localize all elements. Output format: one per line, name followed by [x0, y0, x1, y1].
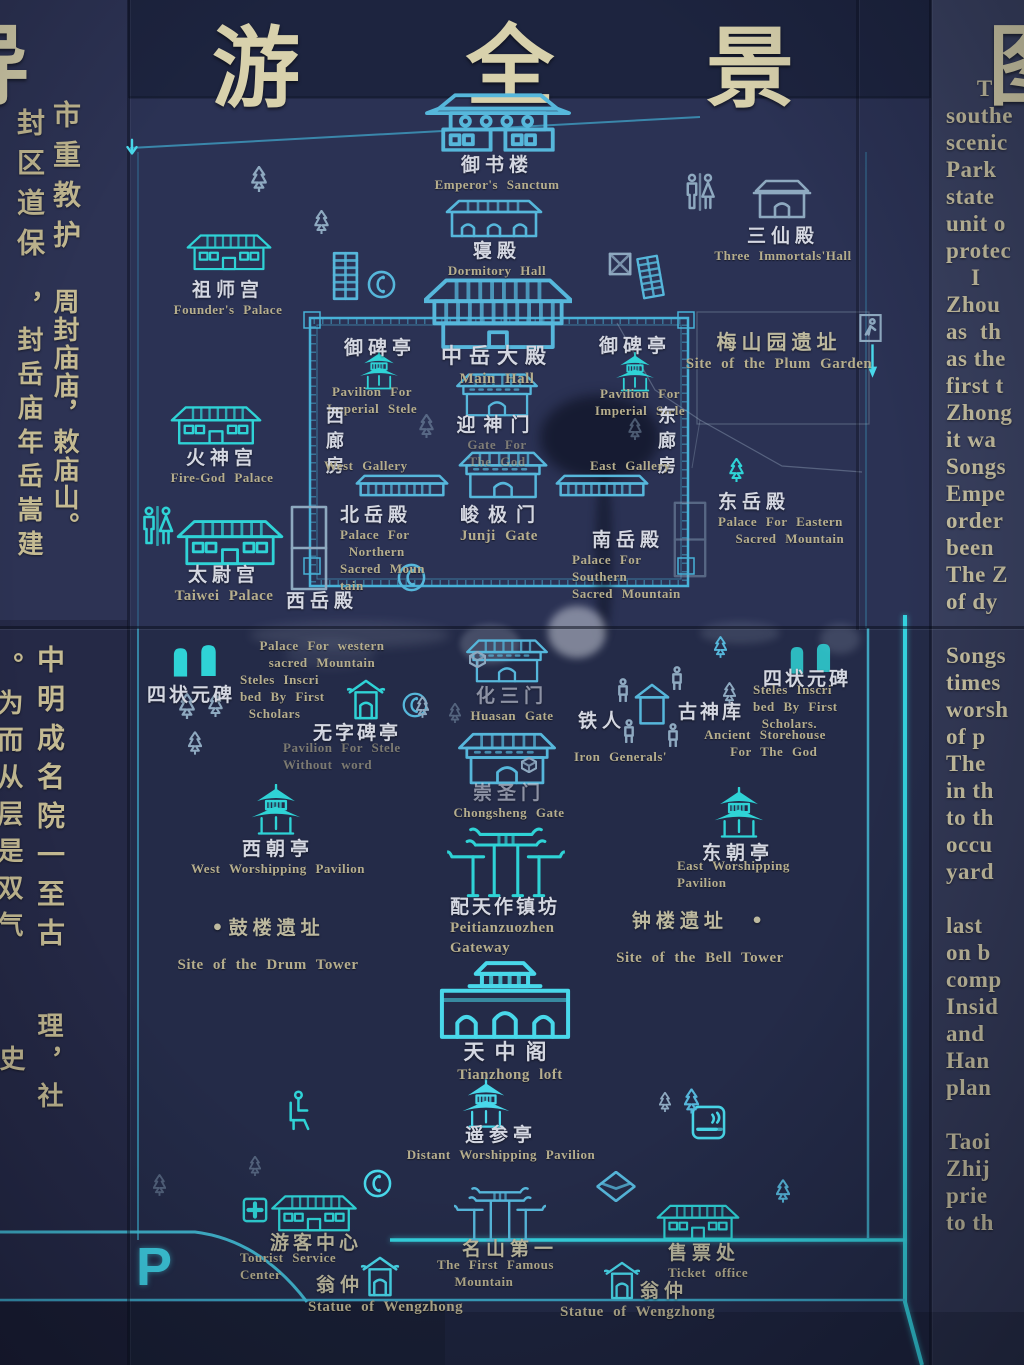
tianzhong-loft-gate-icon [421, 960, 589, 1040]
tree-icon [416, 696, 429, 718]
tree-icon [251, 166, 267, 192]
right-text-line [946, 886, 1024, 913]
signpost-box-icon [608, 249, 637, 278]
wengzhong-shrine-east-icon [604, 1259, 640, 1301]
right-text-line: times [946, 670, 1024, 697]
site-dormitory-hall: 寝殿 Dormitory Hall [448, 236, 546, 280]
right-text-line: on b [946, 940, 1024, 967]
main-hall-icon [408, 276, 588, 350]
right-text-line: Songs [946, 454, 1024, 481]
junji-gate-east-wing-icon [552, 472, 652, 497]
left-col-b1: 封区道保 [8, 108, 48, 268]
right-text-line: been [946, 535, 1024, 562]
right-text-line: The Z [946, 562, 1024, 589]
title-char-partial-left: 导 [0, 0, 30, 123]
ancient-storehouse-canopy-icon [634, 683, 670, 731]
right-text-line: it wa [946, 427, 1024, 454]
tree-icon [684, 1088, 699, 1114]
right-text-line: Zhij [946, 1156, 1024, 1183]
tree-icon [249, 1156, 261, 1176]
left-col-b2: ，封岳庙年岳嵩建 [10, 292, 47, 564]
right-text-line: occu [946, 832, 1024, 859]
right-text-line: Taoi [946, 1129, 1024, 1156]
site-first-famous-mountain-en: The First Famous Mountain [437, 1257, 554, 1291]
site-imperial-stele-pavilion-west-cn: 御碑亭 [344, 333, 416, 360]
right-text-line: last [946, 913, 1024, 940]
site-founders-palace: 祖师宫 Founder's Palace [174, 275, 283, 319]
right-text-line: Zhong [946, 400, 1024, 427]
right-text-line: The [946, 751, 1024, 778]
site-taiwei-palace: 太尉宫 Taiwei Palace [175, 560, 274, 607]
tree-icon [729, 458, 744, 482]
right-text-line: Songs [946, 643, 1024, 670]
right-text-line: yard [946, 859, 1024, 886]
site-imperial-stele-pavilion-east-cn: 御碑亭 [599, 331, 671, 358]
ticket-office-hall-icon [656, 1200, 740, 1242]
peitianzuozhen-gateway-icon [438, 825, 574, 898]
tree-icon [419, 414, 434, 438]
site-first-scholar-steles-west-cn: 四状元碑 [147, 680, 235, 707]
left-col-a1: 市重教护 [44, 100, 84, 260]
right-text-line: to th [946, 1210, 1024, 1237]
site-western-sacred-mountain-palace-cn: 西岳殿 [286, 586, 358, 613]
wengzhong-shrine-west-icon [360, 1255, 400, 1297]
tree-icon [714, 636, 727, 658]
right-text-line: first t [946, 373, 1024, 400]
three-immortals-hall-icon [742, 177, 822, 219]
site-tianzhong-loft: 天中阁 Tianzhong loft [457, 1036, 563, 1086]
right-text-line: I [946, 265, 1024, 292]
left-col-d1: 。为而从层是双气 [0, 652, 27, 948]
right-text-line: Empe [946, 481, 1024, 508]
tree-icon [153, 1174, 166, 1196]
first-aid-icon [242, 1197, 268, 1223]
right-text-line: worsh [946, 697, 1024, 724]
site-drum-tower-ruin: •鼓楼遗址 Site of the Drum Tower [178, 913, 359, 976]
entrance-arrow-icon [124, 138, 140, 158]
site-east-gallery-en: East Gallery [590, 458, 671, 475]
offering-box-icon [521, 757, 537, 773]
site-wengzhong-east: 翁仲 [640, 1276, 688, 1303]
site-yingshen-gate: 迎神门 Gate For The God [456, 410, 537, 471]
right-description-panel: T southe scenic Park state unit o protec… [946, 76, 1024, 1237]
site-wordless-stele-pavilion-en: Pavilion For Stele Without word [283, 740, 401, 774]
offering-box-icon [469, 651, 486, 668]
right-text-line: of dy [946, 589, 1024, 616]
parking-symbol: P [136, 1236, 172, 1298]
iron-general-figure-icon [617, 678, 629, 702]
right-text-line: Park [946, 157, 1024, 184]
site-three-immortals-hall: 三仙殿 Three Immortals'Hall [714, 221, 851, 265]
chongsheng-gate-icon [450, 730, 564, 785]
tourist-center-hall-icon [270, 1192, 358, 1232]
tree-icon [314, 210, 329, 234]
right-text-line: as the [946, 346, 1024, 373]
junji-gate-west-wing-icon [352, 472, 452, 497]
right-text-line: of p [946, 724, 1024, 751]
wordless-stele-pavilion-icon [345, 678, 387, 720]
west-worshipping-pavilion-icon [248, 784, 304, 838]
site-distant-worshipping-pavilion: 遥参亭 Distant Worshipping Pavilion [407, 1120, 595, 1164]
right-text-line: in th [946, 778, 1024, 805]
site-chongsheng-gate: 崇圣门 Chongsheng Gate [453, 778, 564, 822]
site-east-worshipping-pavilion-en: East Worshipping Pavilion [677, 858, 790, 892]
crack-line-branch [692, 420, 700, 468]
site-eastern-sacred-mountain-palace: 东岳殿 Palace For Eastern Sacred Mountain [718, 487, 844, 548]
tree-icon [776, 1179, 790, 1203]
left-col-c2: 理，社 [30, 1012, 67, 1117]
right-text-line: state [946, 184, 1024, 211]
site-first-scholar-steles-west-en: Steles Inscri bed By First Scholars [240, 672, 325, 723]
right-text-line [946, 616, 1024, 643]
fire-god-palace-hall-icon [170, 402, 262, 446]
left-col-c1: 中明成名院一至古 [28, 645, 68, 957]
right-text-line: plan [946, 1075, 1024, 1102]
right-text-line: Han [946, 1048, 1024, 1075]
restroom-icon [140, 506, 175, 546]
gallery-building-icon [330, 251, 361, 301]
tree-icon [659, 1092, 671, 1112]
first-scholar-stele-icon [172, 646, 189, 677]
panel-seam-vertical-left [127, 0, 130, 1365]
telephone-icon [363, 1169, 392, 1198]
site-junji-gate: 峻极门 Junji Gate [460, 500, 544, 547]
right-text-line: scenic [946, 130, 1024, 157]
site-fire-god-palace: 火神宫 Fire-God Palace [171, 443, 274, 487]
site-iron-generals-cn: 铁人 [578, 706, 626, 733]
restroom-icon [684, 173, 716, 211]
left-col-a2: 周封庙庙，敕庙山。 [46, 288, 83, 540]
site-plum-garden: 梅山园遗址 Site of the Plum Garden [686, 326, 873, 375]
site-western-sacred-mountain-palace-en: Palace For western sacred Mountain [260, 638, 385, 672]
right-text-line: protec [946, 238, 1024, 265]
huasan-gate-icon [450, 637, 564, 683]
site-southern-sacred-mountain-palace: 南岳殿 Palace For Southern Sacred Mountain [592, 525, 681, 603]
right-text-line: unit o [946, 211, 1024, 238]
right-text-line: comp [946, 967, 1024, 994]
left-col-d2: 史 [0, 1045, 29, 1071]
right-text-line: T [946, 76, 1024, 103]
photographed-temple-map-sign: { "title": { "partial_left": "导", "char1… [0, 0, 1024, 1365]
title-char-you: 游 [212, 0, 300, 125]
site-first-scholar-steles-east-en: Steles Inscri bed By First Scholars. [753, 682, 838, 733]
iron-general-figure-icon [671, 666, 683, 690]
dormitory-hall-icon [438, 198, 550, 238]
site-bell-tower-ruin: 钟楼遗址 • Site of the Bell Tower [616, 906, 784, 969]
site-main-hall: 中岳大殿 Main Hall [441, 340, 553, 390]
iron-general-figure-icon [667, 723, 679, 747]
right-text-line: as th [946, 319, 1024, 346]
west-sacred-mountain-palace-site-icon [290, 505, 328, 591]
tree-icon [628, 418, 642, 440]
right-text-line: southe [946, 103, 1024, 130]
site-west-worshipping-pavilion: 西朝亭 West Worshipping Pavilion [191, 834, 365, 878]
tree-icon [449, 703, 461, 723]
tree-icon [188, 731, 202, 755]
right-text-line: and [946, 1021, 1024, 1048]
rest-seat-icon [281, 1090, 312, 1131]
site-west-gallery-en: West Gallery [324, 458, 408, 475]
panel-seam-vertical-right [929, 0, 932, 1365]
title-char-jing: 景 [706, 0, 794, 125]
site-wengzhong-west: 翁仲 [316, 1270, 364, 1297]
first-scholar-stele-icon [199, 643, 218, 676]
right-text-line: prie [946, 1183, 1024, 1210]
right-text-line: Insid [946, 994, 1024, 1021]
mail-envelope-icon [596, 1171, 636, 1202]
east-worshipping-pavilion-icon [710, 787, 768, 841]
right-text-line [946, 1102, 1024, 1129]
site-wengzhong-west-en: Statue of Wengzhong [308, 1298, 463, 1318]
right-text-line: to th [946, 805, 1024, 832]
panel-seam-horizontal [0, 626, 1024, 629]
site-huasan-gate: 化三门 Huasan Gate [470, 681, 553, 725]
site-peitianzuozhen-gateway: 配天作镇坊 Peitianzuozhen Gateway [450, 892, 560, 958]
telephone-icon [367, 270, 396, 299]
map-right-wall-outer [905, 615, 922, 1365]
site-iron-generals-en: Iron Generals' [574, 749, 667, 766]
emperor-sanctum-hall-icon [424, 92, 572, 152]
site-ancient-storehouse-cn: 古神库 [678, 697, 744, 724]
site-northern-sacred-mountain-palace: 北岳殿 Palace For Northern Sacred Moun tain [340, 500, 425, 595]
site-emperor-sanctum: 御书楼 Emperor's Sanctum [435, 150, 560, 194]
founders-palace-hall-icon [186, 230, 272, 272]
right-text-line: order [946, 508, 1024, 535]
site-wengzhong-east-en: Statue of Wengzhong [560, 1303, 715, 1323]
right-text-line: Zhou [946, 292, 1024, 319]
